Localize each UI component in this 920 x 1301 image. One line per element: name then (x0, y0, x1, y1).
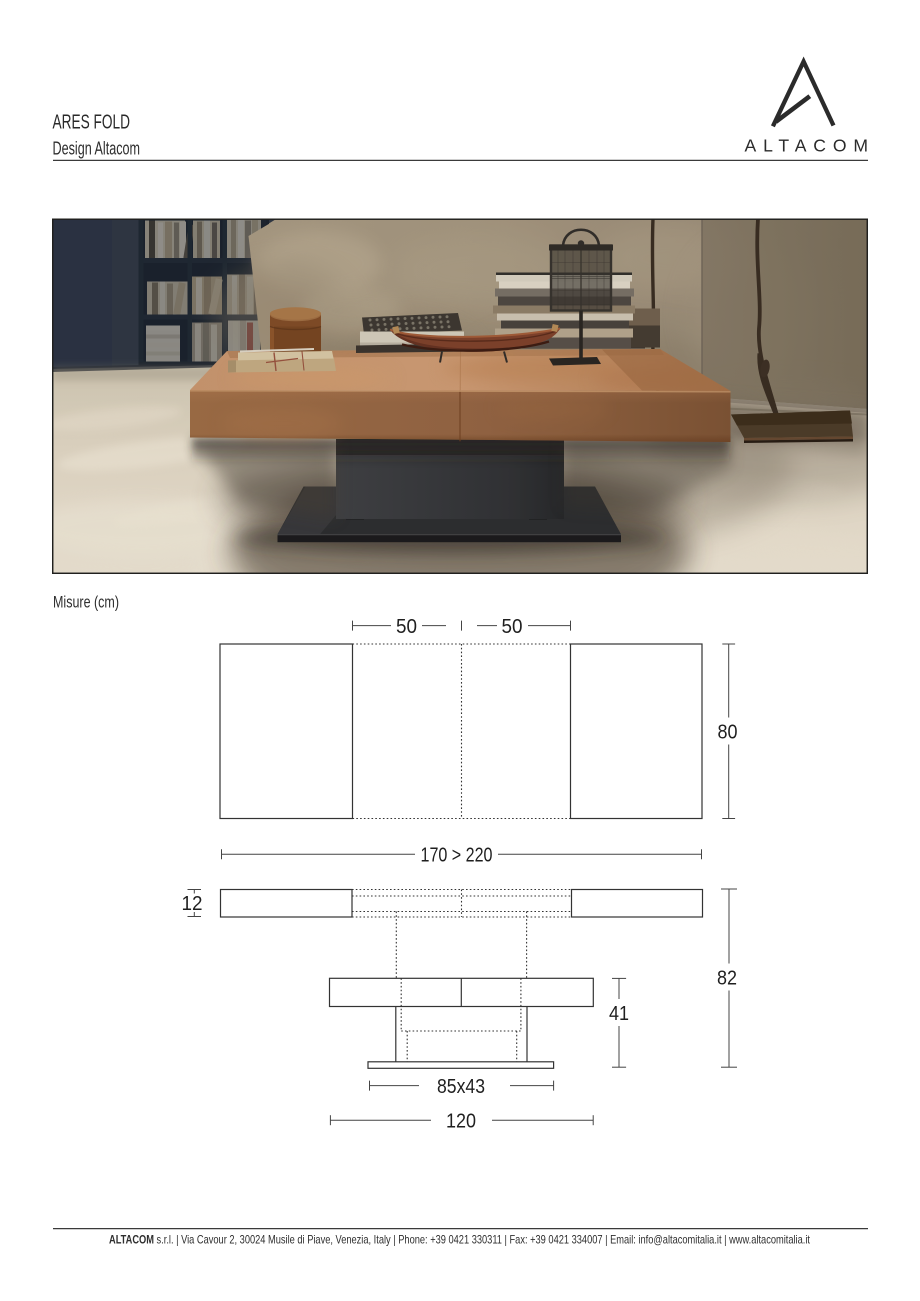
svg-text:Misure (cm): Misure (cm) (53, 593, 119, 612)
svg-text:ARES FOLD: ARES FOLD (53, 112, 131, 134)
svg-text:ALTACOM: ALTACOM (745, 136, 869, 156)
svg-text:85x43: 85x43 (437, 1076, 485, 1098)
svg-text:50: 50 (396, 616, 417, 638)
svg-text:82: 82 (717, 967, 737, 989)
svg-text:50: 50 (502, 616, 523, 638)
svg-text:12: 12 (182, 893, 203, 915)
svg-text:Design Altacom: Design Altacom (53, 139, 141, 159)
svg-text:ALTACOM s.r.l. | Via Cavour 2,: ALTACOM s.r.l. | Via Cavour 2, 30024 Mus… (109, 1234, 811, 1247)
svg-text:170 > 220: 170 > 220 (421, 844, 493, 866)
svg-text:120: 120 (446, 1110, 476, 1132)
svg-text:41: 41 (609, 1003, 629, 1025)
svg-text:80: 80 (718, 721, 738, 743)
